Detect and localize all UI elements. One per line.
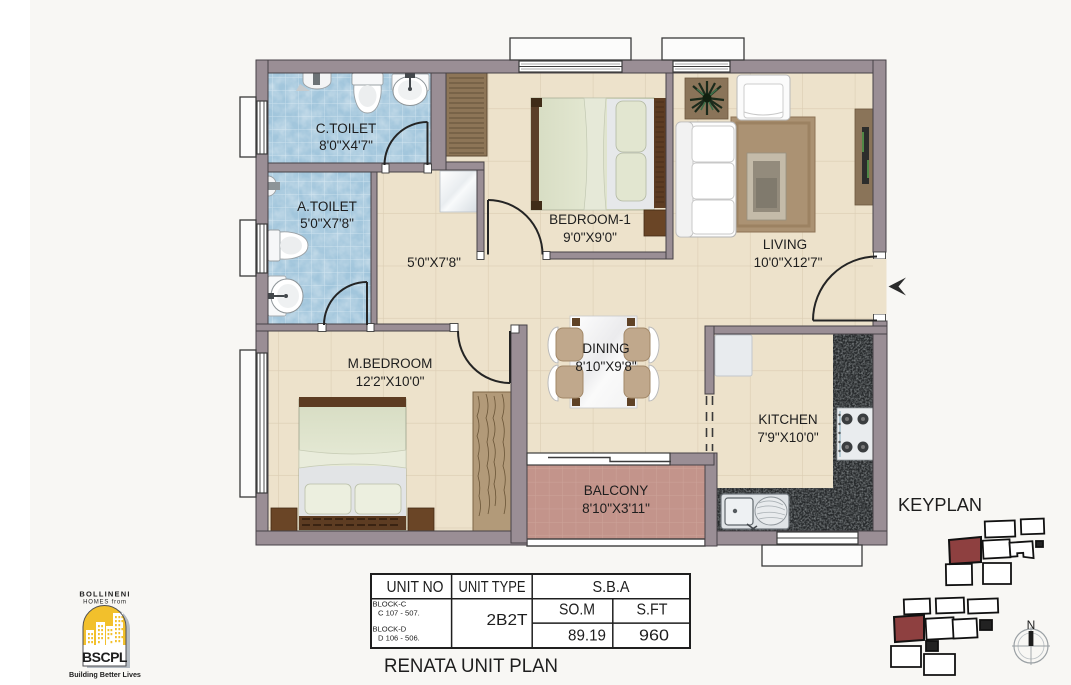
svg-text:SO.M: SO.M [559,602,595,619]
svg-text:12'2"X10'0": 12'2"X10'0" [356,374,425,389]
svg-text:89.19: 89.19 [568,628,606,645]
svg-text:HOMES from: HOMES from [83,600,127,606]
svg-text:S.B.A: S.B.A [593,579,631,596]
svg-text:7'9"X10'0": 7'9"X10'0" [757,430,818,445]
svg-text:8'0"X4'7": 8'0"X4'7" [319,138,373,153]
svg-text:BLOCK-D: BLOCK-D [373,625,407,634]
svg-text:8'10"X9'8": 8'10"X9'8" [575,359,636,374]
svg-text:BSCPL: BSCPL [82,649,128,665]
svg-text:N: N [1027,618,1036,632]
svg-text:KITCHEN: KITCHEN [758,412,817,427]
svg-text:5'0"X7'8": 5'0"X7'8" [300,216,354,231]
svg-text:2B2T: 2B2T [487,612,529,629]
svg-text:D 106 - 506.: D 106 - 506. [378,634,420,643]
svg-text:10'0"X12'7": 10'0"X12'7" [754,255,823,270]
svg-text:BOLLINENI: BOLLINENI [79,590,130,599]
svg-text:UNIT NO: UNIT NO [387,579,444,596]
svg-text:KEYPLAN: KEYPLAN [898,495,982,515]
svg-text:C.TOILET: C.TOILET [316,121,377,136]
svg-text:8'10"X3'11": 8'10"X3'11" [582,501,650,516]
svg-text:BLOCK-C: BLOCK-C [373,600,407,609]
svg-text:BALCONY: BALCONY [584,483,649,498]
svg-text:S.FT: S.FT [637,602,668,619]
svg-text:5'0"X7'8": 5'0"X7'8" [407,255,461,270]
svg-text:C 107 - 507.: C 107 - 507. [378,609,420,618]
svg-text:UNIT TYPE: UNIT TYPE [459,579,526,596]
svg-text:RENATA UNIT PLAN: RENATA UNIT PLAN [384,655,558,677]
svg-text:Building Better Lives: Building Better Lives [69,670,141,679]
svg-text:DINING: DINING [582,341,629,356]
svg-text:LIVING: LIVING [763,237,807,252]
svg-text:9'0"X9'0": 9'0"X9'0" [563,230,617,245]
svg-text:960: 960 [639,628,669,645]
svg-text:M.BEDROOM: M.BEDROOM [348,356,433,371]
svg-text:BEDROOM-1: BEDROOM-1 [549,212,631,227]
svg-text:A.TOILET: A.TOILET [297,199,357,214]
